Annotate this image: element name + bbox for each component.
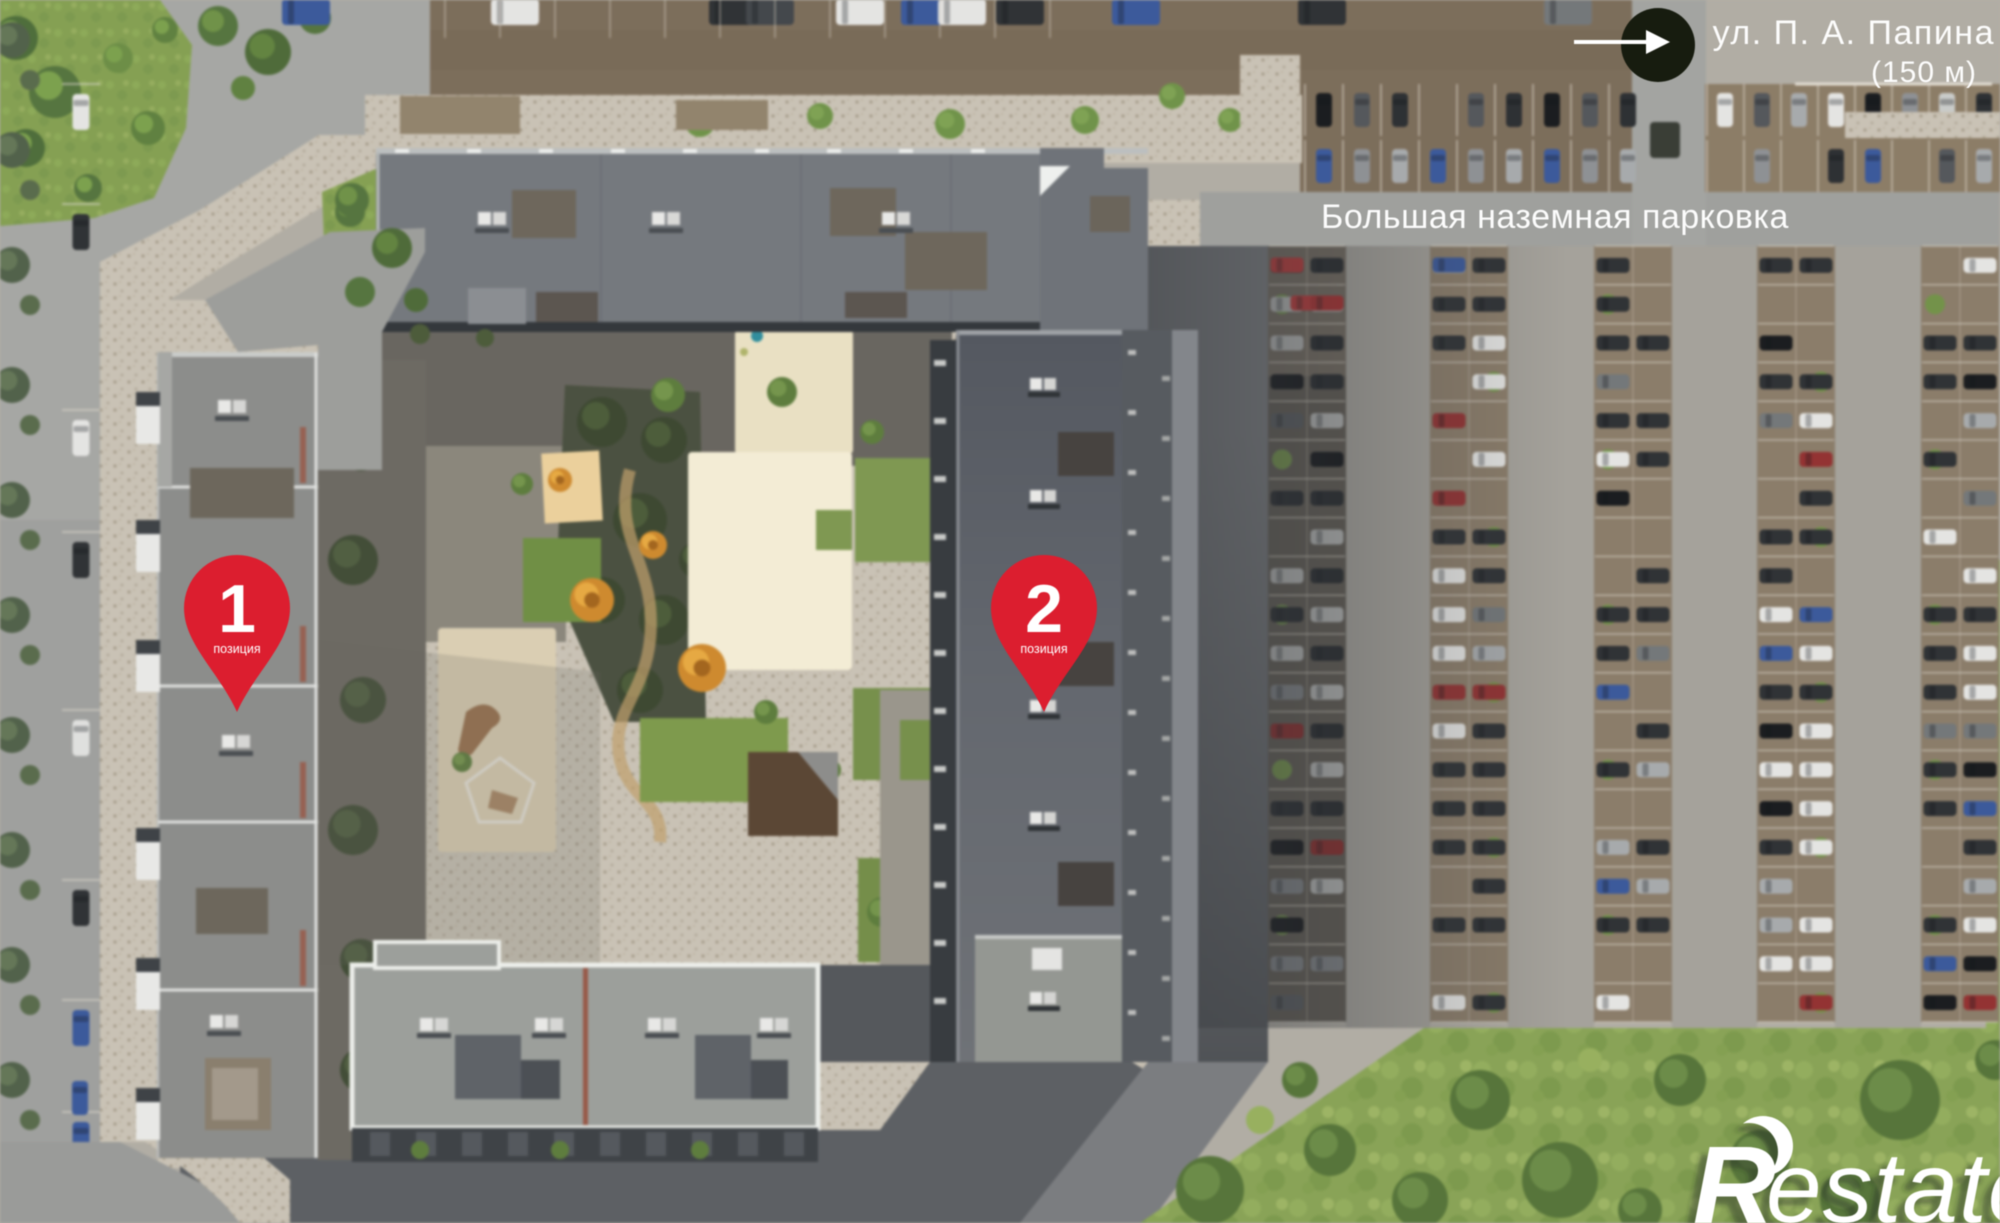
svg-text:ул. П. А. Папина: ул. П. А. Папина (1713, 14, 1995, 52)
svg-text:estate: estate (1766, 1132, 2000, 1223)
svg-text:позиция: позиция (1020, 642, 1067, 656)
svg-text:Большая наземная парковка: Большая наземная парковка (1321, 198, 1789, 236)
svg-text:(150 м): (150 м) (1871, 56, 1977, 89)
svg-text:2: 2 (1025, 571, 1063, 647)
svg-text:позиция: позиция (213, 642, 260, 656)
svg-text:1: 1 (218, 571, 256, 647)
